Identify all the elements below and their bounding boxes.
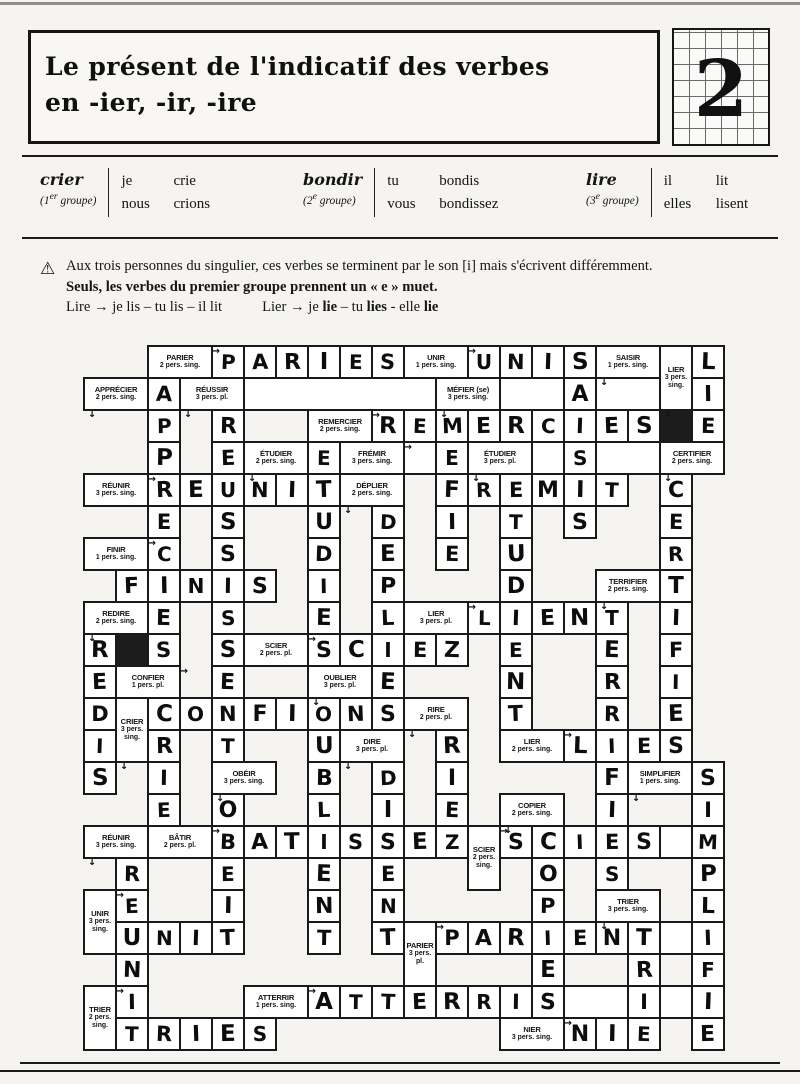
letter-cell[interactable]: E: [307, 601, 341, 635]
letter-cell[interactable]: A: [243, 345, 277, 379]
letter-cell[interactable]: L: [371, 601, 405, 635]
letter-cell[interactable]: S: [563, 441, 597, 475]
handwritten-letter: E: [220, 1021, 236, 1047]
letter-cell[interactable]: E: [83, 665, 117, 699]
handwritten-letter: S: [220, 541, 236, 566]
letter-cell[interactable]: F: [595, 761, 629, 795]
letter-cell[interactable]: S: [211, 633, 245, 667]
letter-cell[interactable]: I: [691, 921, 725, 955]
letter-cell[interactable]: U: [211, 473, 245, 507]
clue-verb: LIER: [524, 738, 541, 747]
letter-cell[interactable]: R: [595, 697, 629, 731]
letter-cell[interactable]: S: [211, 601, 245, 635]
letter-cell[interactable]: E: [691, 409, 725, 443]
handwritten-letter: B: [220, 830, 237, 855]
letter-cell[interactable]: R: [467, 985, 501, 1019]
letter-cell[interactable]: E: [147, 505, 181, 539]
letter-cell[interactable]: R: [499, 409, 533, 443]
rule-bottom-2: [0, 1070, 800, 1072]
handwritten-letter: F: [669, 638, 684, 662]
letter-cell[interactable]: F: [435, 473, 469, 507]
letter-cell[interactable]: A: [563, 377, 597, 411]
clue-cell: FRÉMIR3 pers. sing.→: [339, 441, 405, 475]
letter-cell[interactable]: T: [115, 1017, 149, 1051]
letter-cell[interactable]: L: [691, 889, 725, 923]
letter-cell[interactable]: I: [691, 377, 725, 411]
handwritten-letter: R: [476, 990, 491, 1014]
letter-cell[interactable]: T: [371, 921, 405, 955]
letter-cell[interactable]: I: [435, 761, 469, 795]
letter-cell[interactable]: N: [179, 569, 213, 603]
letter-cell[interactable]: T: [307, 921, 341, 955]
handwritten-letter: E: [573, 926, 588, 950]
letter-cell[interactable]: D: [499, 569, 533, 603]
handwritten-letter: I: [320, 830, 327, 854]
handwritten-letter: S: [91, 765, 108, 791]
handwritten-letter: T: [316, 477, 333, 504]
letter-cell[interactable]: R: [115, 857, 149, 891]
letter-cell[interactable]: I: [691, 793, 725, 827]
letter-cell[interactable]: S: [563, 505, 597, 539]
letter-cell[interactable]: E: [563, 921, 597, 955]
letter-cell[interactable]: F: [659, 633, 693, 667]
handwritten-letter: E: [604, 637, 621, 664]
letter-cell[interactable]: N: [563, 601, 597, 635]
letter-cell[interactable]: S: [243, 569, 277, 603]
letter-cell[interactable]: T: [371, 985, 405, 1019]
letter-cell[interactable]: U: [307, 505, 341, 539]
letter-cell[interactable]: E: [307, 441, 341, 475]
letter-cell[interactable]: E: [499, 633, 533, 667]
letter-cell[interactable]: O: [179, 697, 213, 731]
letter-cell[interactable]: R: [627, 953, 661, 987]
clue-cell: UNIR1 pers. sing.→: [403, 345, 469, 379]
handwritten-letter: I: [703, 989, 712, 1015]
clue-verb: SAISIR: [616, 354, 640, 363]
letter-cell[interactable]: E: [147, 601, 181, 635]
empty-cell[interactable]: [243, 377, 437, 411]
empty-cell[interactable]: [659, 825, 693, 859]
letter-cell[interactable]: E: [531, 601, 565, 635]
letter-cell[interactable]: T: [659, 569, 693, 603]
letter-cell[interactable]: R: [659, 537, 693, 571]
letter-cell[interactable]: S: [83, 761, 117, 795]
letter-cell[interactable]: I: [371, 633, 405, 667]
letter-cell[interactable]: S: [339, 825, 373, 859]
letter-cell[interactable]: N: [211, 697, 245, 731]
clue-cell: PARIER2 pers. sing.→: [147, 345, 213, 379]
letter-cell[interactable]: E: [499, 473, 533, 507]
letter-cell[interactable]: S: [691, 761, 725, 795]
letter-cell[interactable]: R: [499, 921, 533, 955]
letter-cell[interactable]: I: [179, 1017, 213, 1051]
letter-cell[interactable]: E: [595, 633, 629, 667]
handwritten-letter: L: [700, 349, 716, 375]
handwritten-letter: E: [444, 798, 459, 822]
letter-cell[interactable]: T: [211, 729, 245, 763]
clue-cell: OUBLIER3 pers. pl.↓: [307, 665, 373, 699]
handwritten-letter: I: [575, 477, 584, 503]
handwritten-letter: P: [444, 926, 459, 950]
empty-cell[interactable]: [563, 985, 629, 1019]
letter-cell[interactable]: I: [307, 825, 341, 859]
letter-cell[interactable]: I: [211, 889, 245, 923]
handwritten-letter: R: [155, 733, 172, 758]
clue-direction-arrow-icon: ↓: [344, 762, 352, 772]
letter-cell[interactable]: I: [595, 1017, 629, 1051]
handwritten-letter: I: [704, 926, 713, 950]
letter-cell[interactable]: I: [563, 825, 597, 859]
handwritten-letter: E: [540, 605, 556, 631]
letter-cell[interactable]: E: [403, 633, 437, 667]
clue-person: 3 pers. sing.: [96, 490, 136, 498]
letter-cell[interactable]: S: [627, 825, 661, 859]
clue-direction-arrow-icon: →: [148, 475, 156, 485]
letter-cell[interactable]: A: [467, 921, 501, 955]
handwritten-letter: A: [251, 350, 268, 375]
letter-cell[interactable]: E: [627, 729, 661, 763]
letter-cell[interactable]: S: [371, 825, 405, 859]
handwritten-letter: L: [701, 893, 715, 918]
handwritten-letter: I: [576, 830, 584, 854]
letter-cell[interactable]: R: [275, 345, 309, 379]
letter-cell[interactable]: E: [435, 441, 469, 475]
clue-person: 3 pers. sing.: [608, 906, 648, 914]
letter-cell[interactable]: P: [691, 857, 725, 891]
letter-cell[interactable]: R: [211, 409, 245, 443]
handwritten-letter: E: [509, 478, 524, 502]
letter-cell[interactable]: E: [435, 793, 469, 827]
handwritten-letter: I: [448, 766, 456, 791]
letter-cell[interactable]: E: [403, 409, 437, 443]
letter-cell[interactable]: B: [307, 761, 341, 795]
letter-cell[interactable]: P: [371, 569, 405, 603]
letter-cell[interactable]: S: [211, 505, 245, 539]
handwritten-letter: N: [379, 894, 396, 918]
letter-cell[interactable]: N: [499, 345, 533, 379]
letter-cell[interactable]: I: [499, 985, 533, 1019]
letter-cell[interactable]: F: [115, 569, 149, 603]
letter-cell[interactable]: E: [435, 537, 469, 571]
clue-verb: TRIER: [617, 898, 639, 907]
clue-cell: ÉTUDIER2 pers. sing.↓: [243, 441, 309, 475]
letter-cell[interactable]: N: [307, 889, 341, 923]
letter-cell[interactable]: F: [691, 953, 725, 987]
clue-direction-arrow-icon: →: [116, 891, 124, 901]
handwritten-letter: S: [572, 509, 589, 535]
letter-cell[interactable]: M: [691, 825, 725, 859]
handwritten-letter: E: [381, 862, 396, 886]
letter-cell[interactable]: S: [243, 1017, 277, 1051]
handwritten-letter: N: [122, 957, 141, 983]
handwritten-letter: I: [543, 349, 552, 374]
handwritten-letter: N: [571, 1022, 589, 1047]
letter-cell[interactable]: C: [531, 825, 565, 859]
letter-cell[interactable]: I: [435, 505, 469, 539]
handwritten-letter: M: [698, 830, 719, 855]
letter-cell[interactable]: D: [83, 697, 117, 731]
letter-cell[interactable]: D: [307, 537, 341, 571]
clue-person: 3 pers. sing.: [448, 394, 488, 402]
letter-cell[interactable]: E: [691, 1017, 725, 1051]
letter-cell[interactable]: R: [147, 1017, 181, 1051]
handwritten-letter: Z: [444, 637, 461, 663]
letter-cell[interactable]: E: [595, 409, 629, 443]
letter-cell[interactable]: I: [499, 601, 533, 635]
letter-cell[interactable]: E: [339, 345, 373, 379]
clue-direction-arrow-icon: →: [212, 827, 220, 837]
handwritten-letter: N: [347, 702, 365, 727]
letter-cell[interactable]: I: [659, 665, 693, 699]
letter-cell[interactable]: E: [371, 665, 405, 699]
clue-direction-arrow-icon: →: [436, 923, 444, 933]
handwritten-letter: I: [671, 605, 680, 630]
letter-cell[interactable]: E: [211, 857, 245, 891]
handwritten-letter: C: [156, 542, 172, 566]
letter-cell[interactable]: E: [659, 505, 693, 539]
letter-cell[interactable]: S: [531, 985, 565, 1019]
empty-cell[interactable]: [659, 985, 693, 1019]
letter-cell[interactable]: D: [371, 505, 405, 539]
letter-cell[interactable]: T: [211, 921, 245, 955]
handwritten-letter: T: [509, 510, 523, 534]
letter-cell[interactable]: E: [307, 857, 341, 891]
letter-cell[interactable]: L: [691, 345, 725, 379]
handwritten-letter: R: [124, 862, 141, 886]
clue-direction-arrow-icon: ↓: [88, 634, 96, 644]
handwritten-letter: D: [91, 702, 108, 726]
letter-cell[interactable]: I: [307, 345, 341, 379]
letter-cell[interactable]: S: [595, 857, 629, 891]
clue-verb: FRÉMIR: [358, 450, 386, 459]
handwritten-letter: I: [448, 509, 457, 534]
letter-cell[interactable]: R: [435, 729, 469, 763]
letter-cell[interactable]: S: [211, 537, 245, 571]
handwritten-letter: L: [381, 606, 395, 630]
handwritten-letter: R: [507, 925, 526, 952]
letter-cell[interactable]: T: [339, 985, 373, 1019]
letter-cell[interactable]: T: [307, 473, 341, 507]
letter-cell[interactable]: I: [211, 569, 245, 603]
handwritten-letter: T: [125, 1022, 139, 1046]
handwritten-letter: E: [412, 829, 429, 856]
letter-cell[interactable]: T: [595, 473, 629, 507]
letter-cell[interactable]: S: [563, 345, 597, 379]
handwritten-letter: S: [636, 830, 652, 855]
empty-cell[interactable]: [531, 441, 565, 475]
handwritten-letter: D: [379, 766, 396, 791]
letter-cell[interactable]: E: [371, 857, 405, 891]
letter-cell[interactable]: P: [147, 441, 181, 475]
letter-cell[interactable]: S: [659, 729, 693, 763]
clue-verb: CRIER: [121, 718, 144, 727]
letter-cell[interactable]: E: [659, 697, 693, 731]
handwritten-letter: R: [507, 413, 525, 439]
letter-cell[interactable]: M: [531, 473, 565, 507]
letter-cell[interactable]: N: [339, 697, 373, 731]
clue-direction-arrow-icon: ↓: [344, 506, 352, 516]
clue-verb: FINIR: [107, 546, 126, 555]
handwritten-letter: S: [571, 349, 588, 376]
empty-cell[interactable]: [595, 441, 661, 475]
letter-cell[interactable]: E: [371, 537, 405, 571]
handwritten-letter: O: [187, 702, 205, 727]
letter-cell[interactable]: I: [275, 473, 309, 507]
handwritten-letter: E: [380, 541, 396, 567]
handwritten-letter: E: [316, 605, 332, 631]
letter-cell[interactable]: I: [563, 409, 597, 443]
letter-cell[interactable]: L: [307, 793, 341, 827]
handwritten-letter: I: [287, 701, 296, 727]
letter-cell[interactable]: S: [627, 409, 661, 443]
letter-cell[interactable]: C: [339, 633, 373, 667]
clue-direction-arrow-icon: ↓: [216, 794, 224, 804]
handwritten-letter: E: [540, 957, 556, 983]
clue-cell: TRIER3 pers. sing.↓: [595, 889, 661, 923]
letter-cell[interactable]: N: [147, 921, 181, 955]
clue-cell: SCIER2 pers. pl.→: [243, 633, 309, 667]
handwritten-letter: S: [220, 637, 237, 663]
handwritten-letter: R: [604, 702, 621, 726]
letter-cell[interactable]: E: [403, 985, 437, 1019]
letter-cell[interactable]: A: [147, 377, 181, 411]
clue-person: 2 pers. pl.: [420, 714, 452, 722]
letter-cell[interactable]: I: [691, 985, 725, 1019]
clue-verb: CONFIER: [132, 674, 165, 683]
letter-cell[interactable]: N: [115, 953, 149, 987]
letter-cell[interactable]: U: [499, 537, 533, 571]
handwritten-letter: C: [539, 829, 557, 856]
handwritten-letter: S: [573, 446, 588, 470]
letter-cell[interactable]: U: [115, 921, 149, 955]
clue-direction-arrow-icon: ↓: [248, 474, 256, 484]
handwritten-letter: F: [604, 765, 620, 791]
letter-cell[interactable]: E: [467, 409, 501, 443]
clue-direction-arrow-icon: →: [564, 731, 572, 741]
handwritten-letter: F: [444, 477, 461, 504]
letter-cell[interactable]: E: [531, 953, 565, 987]
letter-cell[interactable]: E: [595, 825, 629, 859]
letter-cell[interactable]: I: [595, 729, 629, 763]
letter-cell[interactable]: P: [531, 889, 565, 923]
clue-direction-arrow-icon: ↓: [664, 410, 672, 420]
letter-cell[interactable]: E: [211, 1017, 245, 1051]
clue-person: 3 pers. sing.: [662, 374, 690, 390]
letter-cell[interactable]: R: [147, 729, 181, 763]
letter-cell[interactable]: I: [83, 729, 117, 763]
clue-verb: COPIER: [518, 802, 546, 811]
handwritten-letter: E: [125, 894, 140, 918]
letter-cell[interactable]: T: [627, 921, 661, 955]
letter-cell[interactable]: Z: [435, 825, 469, 859]
letter-cell[interactable]: E: [627, 1017, 661, 1051]
handwritten-letter: S: [635, 413, 652, 439]
empty-cell[interactable]: [659, 921, 693, 955]
clue-direction-arrow-icon: ↓: [88, 410, 96, 420]
clue-person: 3 pers. sing.: [224, 778, 264, 786]
letter-cell[interactable]: I: [563, 473, 597, 507]
letter-cell[interactable]: N: [499, 665, 533, 699]
letter-cell[interactable]: T: [275, 825, 309, 859]
letter-cell[interactable]: N: [371, 889, 405, 923]
handwritten-letter: E: [317, 446, 331, 470]
handwritten-letter: I: [607, 1021, 616, 1047]
letter-cell[interactable]: I: [595, 793, 629, 827]
letter-cell[interactable]: P: [147, 409, 181, 443]
letter-cell[interactable]: Z: [435, 633, 469, 667]
letter-cell[interactable]: O: [531, 857, 565, 891]
clue-cell: SCIER2 pers. sing.→: [467, 825, 501, 891]
letter-cell[interactable]: E: [147, 793, 181, 827]
clue-direction-arrow-icon: ↓: [184, 410, 192, 420]
letter-cell[interactable]: E: [211, 441, 245, 475]
letter-cell[interactable]: I: [531, 921, 565, 955]
letter-cell[interactable]: R: [595, 665, 629, 699]
letter-cell[interactable]: I: [307, 569, 341, 603]
handwritten-letter: T: [508, 701, 524, 727]
letter-cell[interactable]: U: [307, 729, 341, 763]
letter-cell[interactable]: R: [435, 985, 469, 1019]
letter-cell[interactable]: T: [499, 697, 533, 731]
clue-person: 2 pers. pl.: [164, 842, 196, 850]
rule-bottom-1: [20, 1062, 780, 1064]
letter-cell[interactable]: I: [179, 921, 213, 955]
letter-cell[interactable]: I: [371, 793, 405, 827]
letter-cell[interactable]: S: [147, 633, 181, 667]
handwritten-letter: U: [315, 510, 333, 535]
handwritten-letter: E: [637, 734, 652, 758]
clue-verb: NIER: [523, 1026, 540, 1035]
handwritten-letter: I: [223, 893, 232, 919]
letter-cell[interactable]: I: [659, 601, 693, 635]
empty-cell[interactable]: [499, 377, 565, 411]
clue-direction-arrow-icon: ↓: [120, 762, 128, 772]
handwritten-letter: U: [506, 541, 526, 568]
clue-cell: RIRE2 pers. pl.↓: [403, 697, 469, 731]
letter-cell[interactable]: I: [275, 697, 309, 731]
letter-cell[interactable]: I: [531, 345, 565, 379]
handwritten-letter: I: [512, 990, 520, 1014]
handwritten-letter: S: [668, 734, 684, 759]
letter-cell[interactable]: E: [403, 825, 437, 859]
letter-cell[interactable]: I: [147, 761, 181, 795]
clue-direction-arrow-icon: →: [148, 539, 156, 549]
clue-direction-arrow-icon: →: [500, 827, 508, 837]
clue-person: 2 pers. sing.: [96, 394, 136, 402]
clue-verb: RÉUSSIR: [196, 386, 228, 395]
letter-cell[interactable]: I: [627, 985, 661, 1019]
handwritten-letter: P: [540, 894, 556, 918]
handwritten-letter: I: [704, 798, 712, 822]
letter-cell[interactable]: S: [371, 697, 405, 731]
clue-direction-arrow-icon: →: [308, 987, 316, 997]
handwritten-letter: E: [220, 446, 235, 470]
letter-cell[interactable]: T: [499, 505, 533, 539]
clue-person: 2 pers. sing.: [352, 490, 392, 498]
letter-cell[interactable]: C: [531, 409, 565, 443]
letter-cell[interactable]: E: [211, 665, 245, 699]
letter-cell[interactable]: C: [147, 697, 181, 731]
letter-cell[interactable]: E: [179, 473, 213, 507]
handwritten-letter: L: [317, 798, 331, 822]
letter-cell[interactable]: F: [243, 697, 277, 731]
letter-cell[interactable]: S: [371, 345, 405, 379]
letter-cell[interactable]: A: [243, 825, 277, 859]
clue-person: 2 pers. sing.: [608, 586, 648, 594]
letter-cell[interactable]: D: [371, 761, 405, 795]
letter-cell[interactable]: I: [147, 569, 181, 603]
clue-cell: TRIER2 pers. sing.→: [83, 985, 117, 1051]
